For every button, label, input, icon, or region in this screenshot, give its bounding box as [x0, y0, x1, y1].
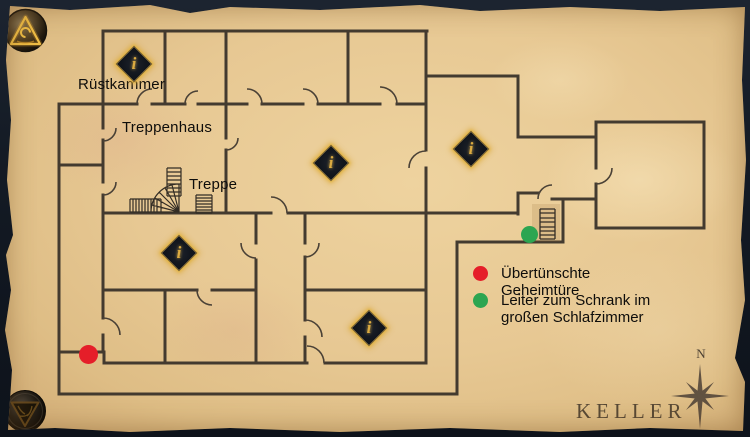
map-marker-red-dot	[79, 345, 98, 364]
legend-dot-red	[473, 266, 488, 281]
triangle-flame-icon	[5, 10, 47, 52]
info-icon: i	[357, 316, 381, 340]
parchment-background: Rüstkammer Treppenhaus Treppe i i i i i …	[0, 0, 750, 437]
map-screen: Rüstkammer Treppenhaus Treppe i i i i i …	[0, 0, 750, 437]
info-icon: i	[122, 52, 146, 76]
innos-seal-button[interactable]	[3, 8, 48, 53]
legend-item: Leiter zum Schrank im großen Schlafzimme…	[473, 292, 666, 326]
legend-dot-green	[473, 293, 488, 308]
inverted-triangle-icon	[5, 391, 46, 432]
room-label-ruestkammer: Rüstkammer	[78, 76, 165, 93]
info-icon: i	[459, 137, 483, 161]
room-label-treppenhaus: Treppenhaus	[122, 119, 212, 136]
compass-north-label: N	[693, 346, 709, 362]
room-label-treppe: Treppe	[189, 176, 237, 193]
info-icon: i	[167, 241, 191, 265]
info-icon: i	[319, 151, 343, 175]
floorplan-map	[0, 0, 750, 437]
map-title: KELLER	[576, 399, 686, 424]
map-marker-green-dot	[521, 226, 538, 243]
legend-label: Leiter zum Schrank im großen Schlafzimme…	[501, 292, 666, 326]
beliar-seal-button[interactable]	[3, 389, 47, 433]
